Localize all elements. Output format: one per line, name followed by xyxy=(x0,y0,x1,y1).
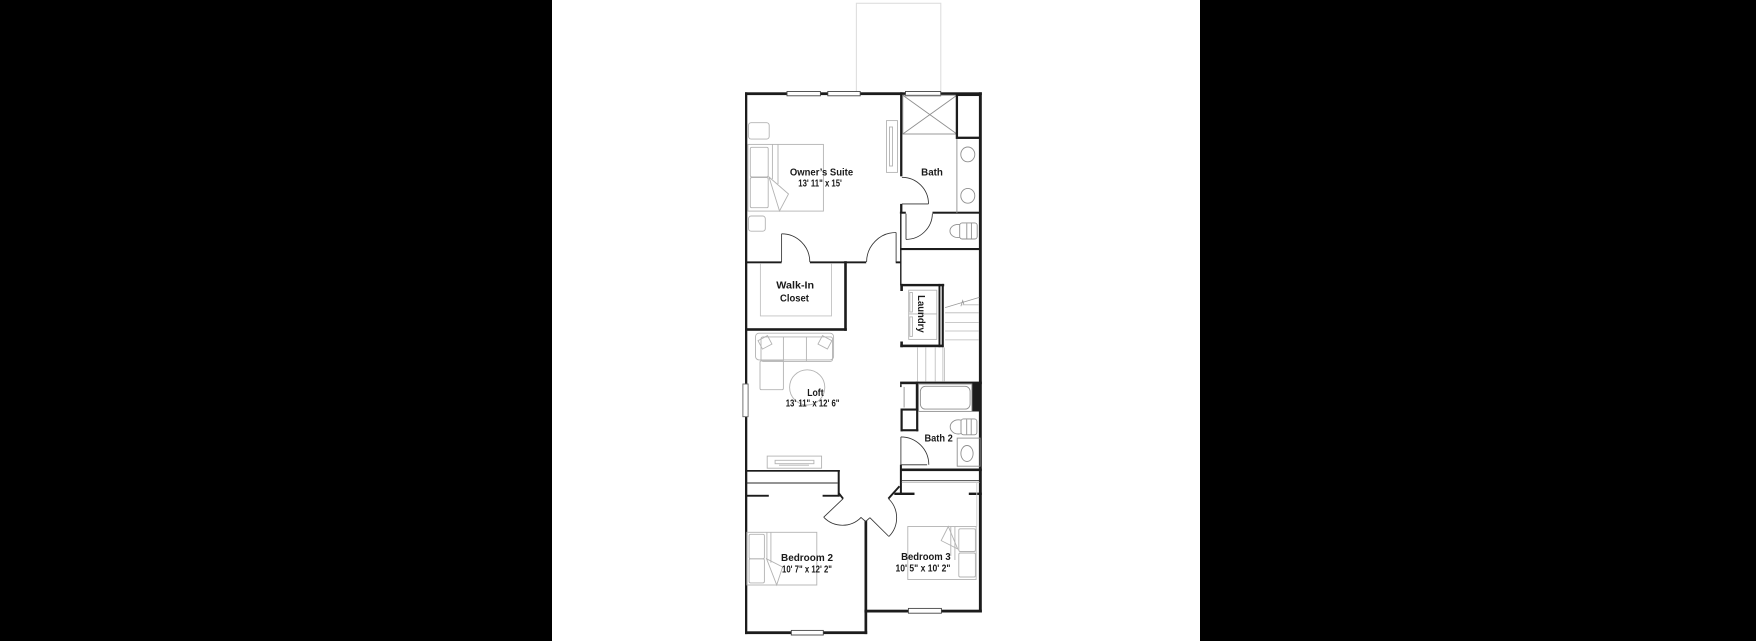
svg-text:10' 7" x 12' 2": 10' 7" x 12' 2" xyxy=(782,565,832,576)
svg-text:Bath 2: Bath 2 xyxy=(924,434,953,445)
svg-text:Bedroom 3: Bedroom 3 xyxy=(901,552,951,563)
svg-text:Walk-In: Walk-In xyxy=(776,280,814,291)
svg-text:10' 5" x 10' 2": 10' 5" x 10' 2" xyxy=(896,564,951,575)
svg-text:13' 11" x 15': 13' 11" x 15' xyxy=(798,178,842,189)
svg-text:Bedroom 2: Bedroom 2 xyxy=(781,553,833,564)
svg-text:Bath: Bath xyxy=(921,168,943,179)
svg-text:Owner’s Suite: Owner’s Suite xyxy=(790,167,854,178)
svg-text:Laundry: Laundry xyxy=(915,295,926,333)
svg-text:Loft: Loft xyxy=(807,388,824,399)
svg-text:Closet: Closet xyxy=(780,293,809,304)
svg-text:13' 11" x 12' 6": 13' 11" x 12' 6" xyxy=(786,399,840,410)
